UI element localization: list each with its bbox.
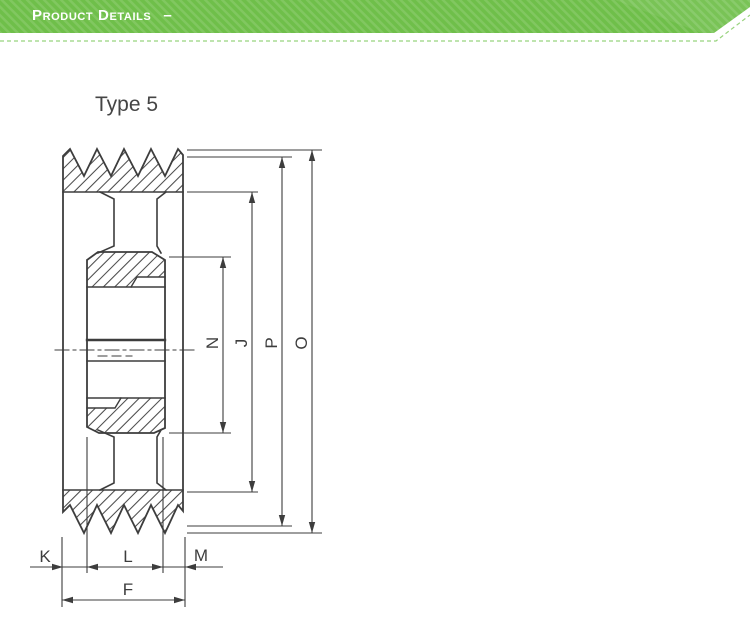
o-arrow-bottom	[309, 522, 315, 533]
f-arrow-right	[174, 597, 185, 603]
label-M: M	[194, 546, 208, 565]
label-P: P	[262, 337, 281, 348]
j-arrow-bottom	[249, 481, 255, 492]
label-J: J	[232, 339, 251, 348]
l-arrow-right	[152, 564, 163, 570]
dimension-labels: K L M F N J P O	[39, 336, 311, 599]
n-arrow-bottom	[220, 422, 226, 433]
label-F: F	[123, 580, 133, 599]
hub-top-flange-hatch	[87, 252, 165, 287]
n-arrow-top	[220, 257, 226, 268]
product-details-section: Product Details– Type 5	[0, 0, 750, 640]
web-bottom-left	[98, 430, 114, 490]
pulley-technical-drawing: Type 5	[0, 0, 750, 640]
label-L: L	[123, 547, 132, 566]
p-arrow-bottom	[279, 515, 285, 526]
hub-bottom-notch	[87, 398, 121, 408]
o-arrow-top	[309, 150, 315, 161]
pulley-cross-section	[55, 149, 197, 533]
web-bottom-right	[157, 430, 166, 490]
hub-top-notch	[131, 277, 165, 287]
label-K: K	[39, 547, 51, 566]
l-arrow-left	[87, 564, 98, 570]
label-N: N	[203, 337, 222, 349]
web-top-right	[157, 192, 166, 253]
web-top-left	[98, 192, 114, 253]
j-arrow-top	[249, 192, 255, 203]
diagram-title: Type 5	[95, 93, 158, 116]
f-arrow-left	[62, 597, 73, 603]
dimension-lines	[30, 150, 322, 607]
p-arrow-top	[279, 157, 285, 168]
hub-bottom-flange-hatch	[87, 398, 165, 433]
k-arrow	[52, 564, 63, 570]
label-O: O	[292, 336, 311, 349]
